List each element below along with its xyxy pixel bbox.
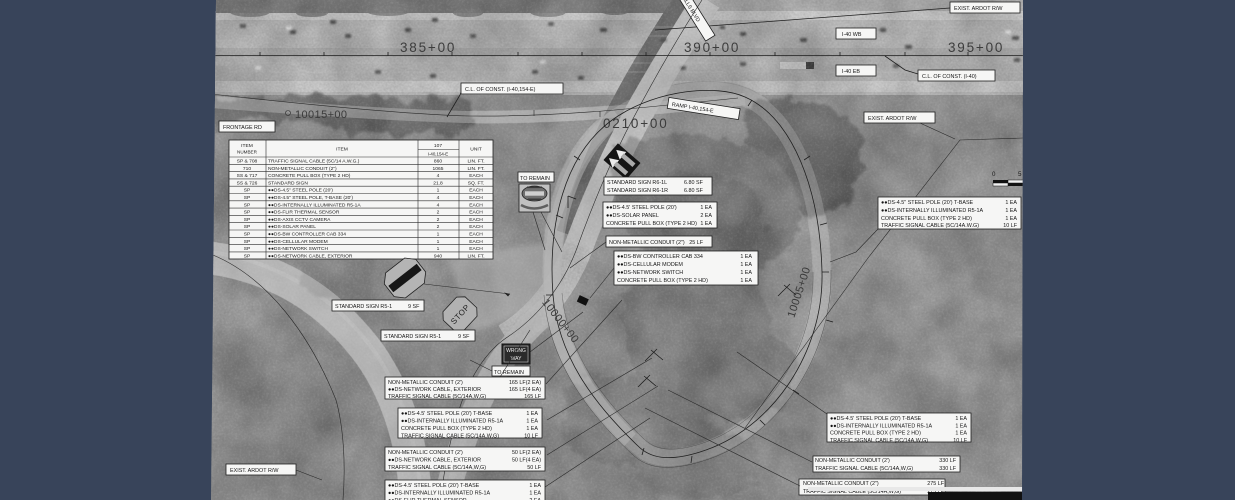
svg-text:165 LF(4 EA): 165 LF(4 EA) (509, 387, 541, 393)
svg-text:●●DS-SOLAR PANEL: ●●DS-SOLAR PANEL (268, 224, 316, 230)
svg-text:50 LF: 50 LF (527, 465, 541, 471)
svg-text:330 LF: 330 LF (939, 466, 956, 472)
svg-text:TRAFFIC SIGNAL CABLE (5C/14: TRAFFIC SIGNAL CABLE (5C/14A,W,G) (830, 438, 928, 444)
svg-text:1 EA: 1 EA (526, 426, 538, 432)
svg-text:●●DS-NETWORK SWITCH: ●●DS-NETWORK SWITCH (617, 270, 683, 276)
svg-text:165 LF(2 EA): 165 LF(2 EA) (509, 380, 541, 386)
svg-text:1065: 1065 (433, 166, 444, 172)
svg-text:2: 2 (437, 210, 440, 216)
svg-text:1 EA: 1 EA (740, 262, 752, 268)
svg-text:1: 1 (437, 239, 440, 245)
svg-text:1 EA: 1 EA (955, 416, 967, 422)
svg-text:●●DS-CELLULAR MODEM: ●●DS-CELLULAR MODEM (617, 262, 683, 268)
svg-text:21.8: 21.8 (433, 180, 443, 186)
svg-text:●●DS-4.5' STEEL POLE (20'): ●●DS-4.5' STEEL POLE (20') T-BASE (830, 416, 922, 422)
svg-text:SP: SP (244, 224, 251, 230)
svg-text:LIN. FT.: LIN. FT. (467, 159, 484, 165)
svg-text:6.80 SF: 6.80 SF (684, 188, 704, 194)
svg-text:●●DS-4.5' STEEL POLE (20'): ●●DS-4.5' STEEL POLE (20') T-BASE (388, 483, 480, 489)
svg-text:10 LF: 10 LF (1003, 223, 1017, 229)
svg-text:EACH: EACH (469, 246, 483, 252)
svg-text:LIN. FT.: LIN. FT. (467, 253, 484, 259)
svg-text:●●DS-INTERNALLY ILLUMINATED: ●●DS-INTERNALLY ILLUMINATED R5-1A (388, 491, 490, 497)
svg-text:EACH: EACH (469, 210, 483, 216)
svg-text:EACH: EACH (469, 188, 483, 194)
svg-text:CONCRETE PULL BOX (TYPE 2: CONCRETE PULL BOX (TYPE 2 HD) (881, 216, 972, 222)
svg-text:EACH: EACH (469, 195, 483, 201)
svg-text:●●DS-4.5' STEEL POLE (20'): ●●DS-4.5' STEEL POLE (20') T-BASE (401, 411, 493, 417)
svg-text:TO REMAIN: TO REMAIN (520, 176, 550, 182)
svg-text:SS & 726: SS & 726 (237, 180, 258, 186)
svg-text:●●DS-4.5' STEEL POLE (20'): ●●DS-4.5' STEEL POLE (20') (606, 205, 677, 211)
svg-text:I-40,154-E: I-40,154-E (428, 152, 449, 157)
svg-text:TRAFFIC SIGNAL CABLE (5C/14 A.: TRAFFIC SIGNAL CABLE (5C/14 A.W.G.) (268, 159, 360, 165)
svg-text:STANDARD SIGN: STANDARD SIGN (268, 180, 308, 186)
svg-text:EACH: EACH (469, 173, 483, 179)
svg-text:395+00: 395+00 (948, 40, 1004, 55)
svg-text:385+00: 385+00 (400, 40, 456, 55)
svg-text:●●DS-4.5" STEEL POLE, T-BASE (: ●●DS-4.5" STEEL POLE, T-BASE (20') (268, 195, 353, 201)
svg-text:●●DS-SOLAR PANEL: ●●DS-SOLAR PANEL (606, 213, 659, 219)
svg-text:ITEM: ITEM (336, 147, 348, 153)
svg-text:1 EA: 1 EA (526, 411, 538, 417)
svg-text:330 LF: 330 LF (939, 458, 956, 464)
svg-text:SQ. FT.: SQ. FT. (468, 180, 485, 186)
svg-text:1 EA: 1 EA (740, 270, 752, 276)
svg-text:TRAFFIC SIGNAL CABLE (5C/14: TRAFFIC SIGNAL CABLE (5C/14A.W.G) (881, 223, 979, 229)
svg-text:SP: SP (244, 217, 251, 223)
svg-text:CONCRETE PULL BOX (TYPE 2: CONCRETE PULL BOX (TYPE 2 HD) (830, 431, 921, 437)
svg-text:LIN. FT.: LIN. FT. (467, 166, 484, 172)
svg-text:●●DS-INTERNALLY ILLUMINATED R5: ●●DS-INTERNALLY ILLUMINATED R5-1A (268, 202, 361, 208)
svg-text:0210+00: 0210+00 (603, 116, 669, 131)
svg-text:●●DS-INTERNALLY ILLUMINATED: ●●DS-INTERNALLY ILLUMINATED R5-1A (881, 208, 983, 214)
svg-text:EACH: EACH (469, 202, 483, 208)
svg-text:STANDARD SIGN R5-1: STANDARD SIGN R5-1 (384, 334, 441, 340)
svg-text:●●DS-AXIS CCTV CAMERA: ●●DS-AXIS CCTV CAMERA (268, 217, 331, 223)
svg-text:NON-METALLIC CONDUIT (2"): NON-METALLIC CONDUIT (2") (609, 240, 685, 246)
svg-text:1 EA: 1 EA (529, 491, 541, 497)
svg-text:ITEM: ITEM (241, 143, 253, 149)
svg-text:NON-METALLIC CONDUIT (2'): NON-METALLIC CONDUIT (2') (388, 450, 463, 456)
svg-text:9 SF: 9 SF (408, 304, 420, 310)
svg-text:SP: SP (244, 246, 251, 252)
svg-text:1 EA: 1 EA (526, 419, 538, 425)
svg-text:107: 107 (434, 143, 442, 149)
svg-text:940: 940 (434, 253, 442, 259)
svg-text:EXIST. ARDOT R/W: EXIST. ARDOT R/W (954, 6, 1003, 12)
svg-text:CONCRETE PULL BOX (TYPE 2: CONCRETE PULL BOX (TYPE 2 HD) (606, 221, 697, 227)
svg-text:1 EA: 1 EA (700, 221, 712, 227)
svg-text:STANDARD SIGN R6-1R: STANDARD SIGN R6-1R (607, 188, 668, 194)
svg-text:1 EA: 1 EA (955, 423, 967, 429)
svg-text:●●DS-NETWORK CABLE, EXTERIOR: ●●DS-NETWORK CABLE, EXTERIOR (388, 458, 481, 464)
svg-text:10 LF: 10 LF (953, 438, 967, 444)
svg-text:EACH: EACH (469, 232, 483, 238)
svg-text:FRONTAGE RD: FRONTAGE RD (223, 125, 262, 131)
svg-text:NON-METALLIC CONDUIT (2"): NON-METALLIC CONDUIT (2") (268, 166, 337, 172)
svg-text:●●DS-FLIR THERMAL SENSOR: ●●DS-FLIR THERMAL SENSOR (268, 210, 340, 216)
svg-text:C.L. OF CONST. (I-40,154-E): C.L. OF CONST. (I-40,154-E) (465, 87, 536, 93)
svg-text:4: 4 (437, 173, 440, 179)
svg-text:1 EA: 1 EA (1005, 216, 1017, 222)
svg-text:50 LF(4 EA): 50 LF(4 EA) (512, 458, 541, 464)
svg-text:860: 860 (434, 159, 442, 165)
svg-text:1: 1 (437, 246, 440, 252)
svg-text:275 LF: 275 LF (927, 481, 944, 487)
svg-text:STANDARD SIGN R6-1L: STANDARD SIGN R6-1L (607, 180, 667, 186)
svg-text:SS & 717: SS & 717 (237, 173, 258, 179)
svg-text:6.80 SF: 6.80 SF (684, 180, 704, 186)
svg-text:NON-METALLIC CONDUIT (2"): NON-METALLIC CONDUIT (2") (803, 481, 879, 487)
svg-text:SP: SP (244, 253, 251, 259)
svg-text:SP: SP (244, 195, 251, 201)
svg-text:●●DS-NETWORK SWITCH: ●●DS-NETWORK SWITCH (268, 246, 328, 252)
svg-text:●●DS-4.5" STEEL POLE (20'): ●●DS-4.5" STEEL POLE (20') T-BASE (881, 200, 974, 206)
svg-text:4: 4 (437, 195, 440, 201)
svg-text:●●DS-BW CONTROLLER CAB 334: ●●DS-BW CONTROLLER CAB 334 (617, 254, 703, 260)
svg-text:●●DS-BW CONTROLLER CAB 334: ●●DS-BW CONTROLLER CAB 334 (268, 232, 346, 238)
svg-text:SP: SP (244, 232, 251, 238)
svg-text:NUMBER: NUMBER (237, 150, 258, 155)
svg-text:I-40 EB: I-40 EB (842, 69, 860, 75)
svg-text:TRAFFIC SIGNAL CABLE (5C/14: TRAFFIC SIGNAL CABLE (5C/14A,W,G) (815, 466, 913, 472)
svg-text:SP: SP (244, 188, 251, 194)
svg-text:1: 1 (437, 188, 440, 194)
svg-text:10015+00: 10015+00 (295, 109, 347, 121)
svg-text:TRAFFIC SIGNAL CABLE (5C/14: TRAFFIC SIGNAL CABLE (5C/14A,W,G) (388, 465, 486, 471)
svg-text:5: 5 (1018, 171, 1022, 178)
svg-text:10 LF: 10 LF (524, 434, 538, 440)
svg-text:710: 710 (243, 166, 251, 172)
svg-text:2 EA: 2 EA (700, 213, 712, 219)
svg-text:TRAFFIC SIGNAL CABLE (5C/14: TRAFFIC SIGNAL CABLE (5C/14A,W,G) (401, 434, 499, 440)
svg-text:SP & 708: SP & 708 (237, 159, 258, 165)
svg-text:STANDARD SIGN R5-1: STANDARD SIGN R5-1 (335, 304, 392, 310)
svg-text:●●DS-4.5" STEEL POLE (20'): ●●DS-4.5" STEEL POLE (20') (268, 188, 333, 194)
svg-text:1 EA: 1 EA (955, 431, 967, 437)
svg-text:WAY: WAY (511, 356, 522, 362)
svg-text:●●DS-NETWORK CABLE, EXTERIOR: ●●DS-NETWORK CABLE, EXTERIOR (388, 387, 481, 393)
svg-text:1 EA: 1 EA (740, 254, 752, 260)
svg-text:SP: SP (244, 239, 251, 245)
svg-text:SP: SP (244, 202, 251, 208)
svg-text:1 EA: 1 EA (1005, 200, 1017, 206)
svg-text:●●DS-NETWORK CABLE, EXTERIOR: ●●DS-NETWORK CABLE, EXTERIOR (268, 253, 353, 259)
svg-text:CONCRETE PULL BOX (TYPE 2: CONCRETE PULL BOX (TYPE 2 HD) (617, 278, 708, 284)
svg-text:390+00: 390+00 (684, 40, 740, 55)
svg-text:C.L. OF CONST. (I-40): C.L. OF CONST. (I-40) (922, 74, 977, 80)
svg-text:1: 1 (437, 232, 440, 238)
svg-text:●●DS-INTERNALLY ILLUMINATED: ●●DS-INTERNALLY ILLUMINATED R5-1A (401, 419, 503, 425)
svg-text:1 EA: 1 EA (740, 278, 752, 284)
svg-text:2: 2 (437, 224, 440, 230)
svg-text:NON-METALLIC CONDUIT (2'): NON-METALLIC CONDUIT (2') (815, 458, 890, 464)
svg-text:25 LF: 25 LF (689, 240, 703, 246)
svg-text:EACH: EACH (469, 217, 483, 223)
svg-text:SP: SP (244, 210, 251, 216)
svg-text:TRAFFIC SIGNAL CABLE (5C/14: TRAFFIC SIGNAL CABLE (5C/14A,W,G) (388, 394, 486, 400)
svg-text:0: 0 (992, 171, 996, 178)
svg-text:4: 4 (437, 202, 440, 208)
svg-text:1 EA: 1 EA (700, 205, 712, 211)
svg-text:TO REMAIN: TO REMAIN (494, 370, 524, 376)
svg-text:165 LF: 165 LF (524, 394, 541, 400)
svg-text:50 LF(2 EA): 50 LF(2 EA) (512, 450, 541, 456)
svg-text:EACH: EACH (469, 224, 483, 230)
svg-text:WRONG: WRONG (506, 348, 526, 354)
svg-text:●●DS-INTERNALLY ILLUMINATED: ●●DS-INTERNALLY ILLUMINATED R5-1A (830, 423, 932, 429)
svg-text:CONCRETE PULL BOX (TYPE 2 HD): CONCRETE PULL BOX (TYPE 2 HD) (268, 173, 351, 179)
svg-text:●●DS-CELLULAR MODEM: ●●DS-CELLULAR MODEM (268, 239, 328, 245)
svg-text:1 EA: 1 EA (1005, 208, 1017, 214)
svg-text:2: 2 (437, 217, 440, 223)
svg-text:NON-METALLIC CONDUIT (2'): NON-METALLIC CONDUIT (2') (388, 380, 463, 386)
svg-text:EXIST. ARDOT R/W: EXIST. ARDOT R/W (868, 116, 917, 122)
svg-text:UNIT: UNIT (470, 147, 481, 153)
svg-text:CONCRETE PULL BOX (TYPE 2: CONCRETE PULL BOX (TYPE 2 HD) (401, 426, 492, 432)
svg-text:I-40 WB: I-40 WB (842, 32, 862, 38)
svg-text:1 EA: 1 EA (529, 483, 541, 489)
svg-text:EACH: EACH (469, 239, 483, 245)
svg-text:EXIST. ARDOT R/W: EXIST. ARDOT R/W (230, 468, 279, 474)
svg-text:9 SF: 9 SF (458, 334, 470, 340)
